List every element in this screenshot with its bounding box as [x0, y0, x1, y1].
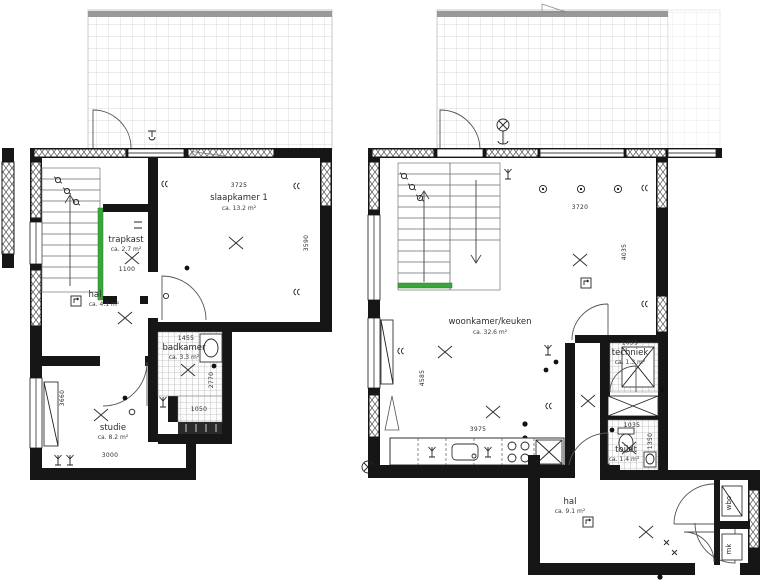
woonkamer-bottom-wall: [368, 465, 540, 478]
left-top-wall-hatch: [34, 149, 126, 157]
slaapkamer-label: slaapkamer 1: [210, 193, 268, 203]
vent-triangle: [385, 396, 399, 430]
dim-trapkast-door: 1100: [119, 266, 135, 273]
dim-badkamer-width: 1455: [178, 335, 194, 342]
ceiling-point: [123, 396, 128, 401]
dim-woonkamer-height-right: 4035: [621, 244, 628, 260]
right-top-opening: [437, 149, 483, 157]
closet-block: wbo mk: [674, 480, 750, 565]
wbo-label: wbo: [725, 496, 733, 510]
outlet-icon: [61, 186, 72, 197]
hal-top-wall: [668, 470, 760, 480]
ceiling-point: [554, 360, 559, 365]
socket-icon: [642, 301, 648, 307]
right-wall-hatch: [657, 162, 667, 208]
right-wall-hatch: [369, 162, 379, 210]
slaapkamer-center-mark: [229, 237, 243, 249]
right-top-wall-hatch: [486, 149, 538, 157]
dim-techniek-width: 1035: [622, 340, 638, 347]
hal-center-mark: [118, 312, 132, 324]
techniek-label: techniek: [612, 348, 649, 358]
convector-unit: [178, 422, 222, 434]
badkamer-room: badkamer ca. 3.3 m² 1455 2770: [158, 332, 222, 396]
left-staircase: [42, 168, 103, 300]
thermostat-icon: [581, 278, 591, 288]
right-roof-terrace: [437, 10, 668, 150]
hal-center-mark: [639, 526, 653, 538]
floor-plan-canvas: trapkast ca. 2.7 m² 1100 slaapkamer 1 ca…: [0, 0, 768, 582]
outlet-cluster: [398, 171, 425, 204]
socket-icon: [642, 185, 648, 191]
wc-cistern: [618, 428, 634, 434]
smoke-detector: [129, 409, 135, 415]
shaft: [608, 396, 658, 416]
room-center-mark: [486, 406, 500, 418]
slaapkamer-area: ca. 13.2 m²: [222, 205, 257, 212]
slaapkamer-room: slaapkamer 1 ca. 13.2 m² 3725 3590: [162, 181, 310, 320]
neighbour-wall-hatch: [2, 162, 14, 254]
studie-label: studie: [100, 423, 126, 433]
drain-symbol: [160, 397, 167, 407]
ceiling-light: [539, 185, 546, 192]
left-wall-hatch: [31, 270, 41, 326]
left-roof-terrace: [88, 10, 332, 150]
woonkamer-area: ca. 32.6 m²: [473, 329, 508, 336]
left-floor-plan: trapkast ca. 2.7 m² 1100 slaapkamer 1 ca…: [2, 10, 332, 480]
studie-area: ca. 8.2 m²: [98, 434, 129, 441]
slaapkamer-partition: [148, 318, 158, 332]
hal-right-label: hal: [564, 497, 577, 507]
hal-badkamer-wall: [148, 332, 158, 442]
wbo-door-swing: [674, 484, 714, 524]
stair-accent-strip: [398, 283, 452, 288]
toilet-bottom-wall: [620, 470, 668, 480]
trapkast-label: trapkast: [108, 235, 144, 245]
hal-studie-wall: [42, 356, 100, 366]
stair-up-arrow: [65, 195, 75, 286]
dim-studie-width: 3000: [102, 452, 118, 459]
right-top-wall-hatch: [626, 149, 666, 157]
hal-arm-center-mark: [581, 395, 595, 407]
wall-column: [600, 465, 620, 480]
thermostat-icon: [71, 296, 81, 306]
outlet-icon: [398, 171, 409, 182]
neighbour-wall: [2, 148, 14, 162]
hal-wall-hatch: [749, 490, 759, 548]
dim-washer-niche: 1050: [191, 406, 207, 413]
hal-bottom-wall: [528, 563, 695, 575]
niche-wall: [168, 396, 178, 422]
techniek-area: ca. 1.3 m²: [615, 359, 646, 366]
right-wall-hatch: [369, 395, 379, 437]
stair-up-arrow: [419, 191, 429, 282]
hal-arm-top-wall: [575, 335, 600, 343]
dim-badkamer-height: 2770: [208, 372, 215, 388]
spot-point: [522, 421, 527, 426]
drain-symbol: [505, 169, 512, 179]
mk-label: mk: [725, 543, 733, 555]
slaapkamer-partition: [148, 158, 158, 272]
ceiling-light: [577, 185, 584, 192]
outlet-icon: [406, 182, 417, 193]
drain-symbol: [67, 455, 74, 465]
dim-slaapkamer-height: 3590: [303, 235, 310, 251]
dim-studie-height: 3660: [59, 390, 66, 406]
mk-door-swing: [684, 532, 714, 562]
socket-icon: [162, 181, 168, 187]
toilet-area: ca. 1.4 m²: [609, 456, 640, 463]
socket-icon: [546, 403, 552, 409]
woonkamer-label: woonkamer/keuken: [448, 317, 531, 327]
slaapkamer-door-swing: [162, 276, 206, 320]
ceiling-point: [610, 428, 615, 433]
trapkast-area: ca. 2.7 m²: [111, 246, 142, 253]
switch-marks: [664, 540, 677, 555]
dim-woonkamer-height-left: 4585: [419, 370, 426, 386]
stair-down-arrow: [471, 180, 481, 263]
entry-point: [657, 574, 662, 579]
room-center-mark: [573, 254, 587, 266]
badkamer-label: badkamer: [163, 343, 206, 353]
toilet-label: toilet: [615, 445, 637, 455]
left-wall-hatch: [321, 162, 331, 206]
dim-kitchen-width: 3975: [470, 426, 486, 433]
left-wall-hatch: [31, 162, 41, 218]
right-staircase: [398, 163, 500, 290]
socket-icon: [294, 183, 300, 189]
ceiling-point: [544, 368, 549, 373]
outlet-icon: [52, 175, 63, 186]
thermostat-icon: [583, 517, 593, 527]
drain-symbol: [545, 345, 552, 355]
right-floor-plan: 3720 4035 4585 woonkamer/keuken ca. 32.6…: [362, 4, 760, 580]
hal-left-label: hal: [89, 290, 102, 300]
hal-left-wall: [528, 455, 540, 575]
trapkast-room: trapkast ca. 2.7 m² 1100: [103, 204, 148, 304]
ceiling-point: [212, 364, 217, 369]
ceiling-light: [614, 185, 621, 192]
badkamer-area: ca. 3.3 m²: [169, 354, 200, 361]
slaapkamer-bottom-wall: [158, 322, 332, 332]
shelf-marks: [134, 222, 142, 228]
wall-stub: [540, 465, 575, 478]
room-center-mark: [438, 346, 452, 358]
right-wall-hatch: [657, 296, 667, 332]
woonkamer-hal-door-swing: [572, 304, 608, 340]
hal-right-area: ca. 9.1 m²: [555, 508, 586, 515]
dim-toilet-height: 1350: [647, 433, 654, 449]
outlet-cluster: [52, 175, 81, 208]
hal-left-area: ca. 4.1 m²: [89, 301, 120, 308]
floor-plan-sheet: trapkast ca. 2.7 m² 1100 slaapkamer 1 ca…: [0, 0, 768, 582]
left-terrace-edge-bar: [88, 11, 332, 17]
dim-slaapkamer-width: 3725: [231, 182, 247, 189]
badkamer-right-wall: [222, 332, 232, 442]
hal-arm-wall: [565, 343, 575, 465]
right-top-wall-hatch: [372, 149, 434, 157]
studie-room: studie ca. 8.2 m² 3000 3660: [44, 382, 135, 465]
right-terrace-extension: [668, 10, 720, 150]
stair-accent-strip: [98, 208, 103, 300]
drain-symbol: [55, 455, 62, 465]
ceiling-point: [660, 388, 665, 393]
wall-light: [163, 293, 168, 298]
socket-icon: [294, 289, 300, 295]
neighbour-wall: [2, 254, 14, 268]
studie-center-mark: [94, 409, 108, 421]
dim-woonkamer-width: 3720: [572, 204, 588, 211]
socket-icon: [398, 348, 404, 354]
studie-bottom-wall: [30, 468, 196, 480]
trapkast-center-mark: [125, 252, 139, 264]
ceiling-point: [185, 266, 190, 271]
